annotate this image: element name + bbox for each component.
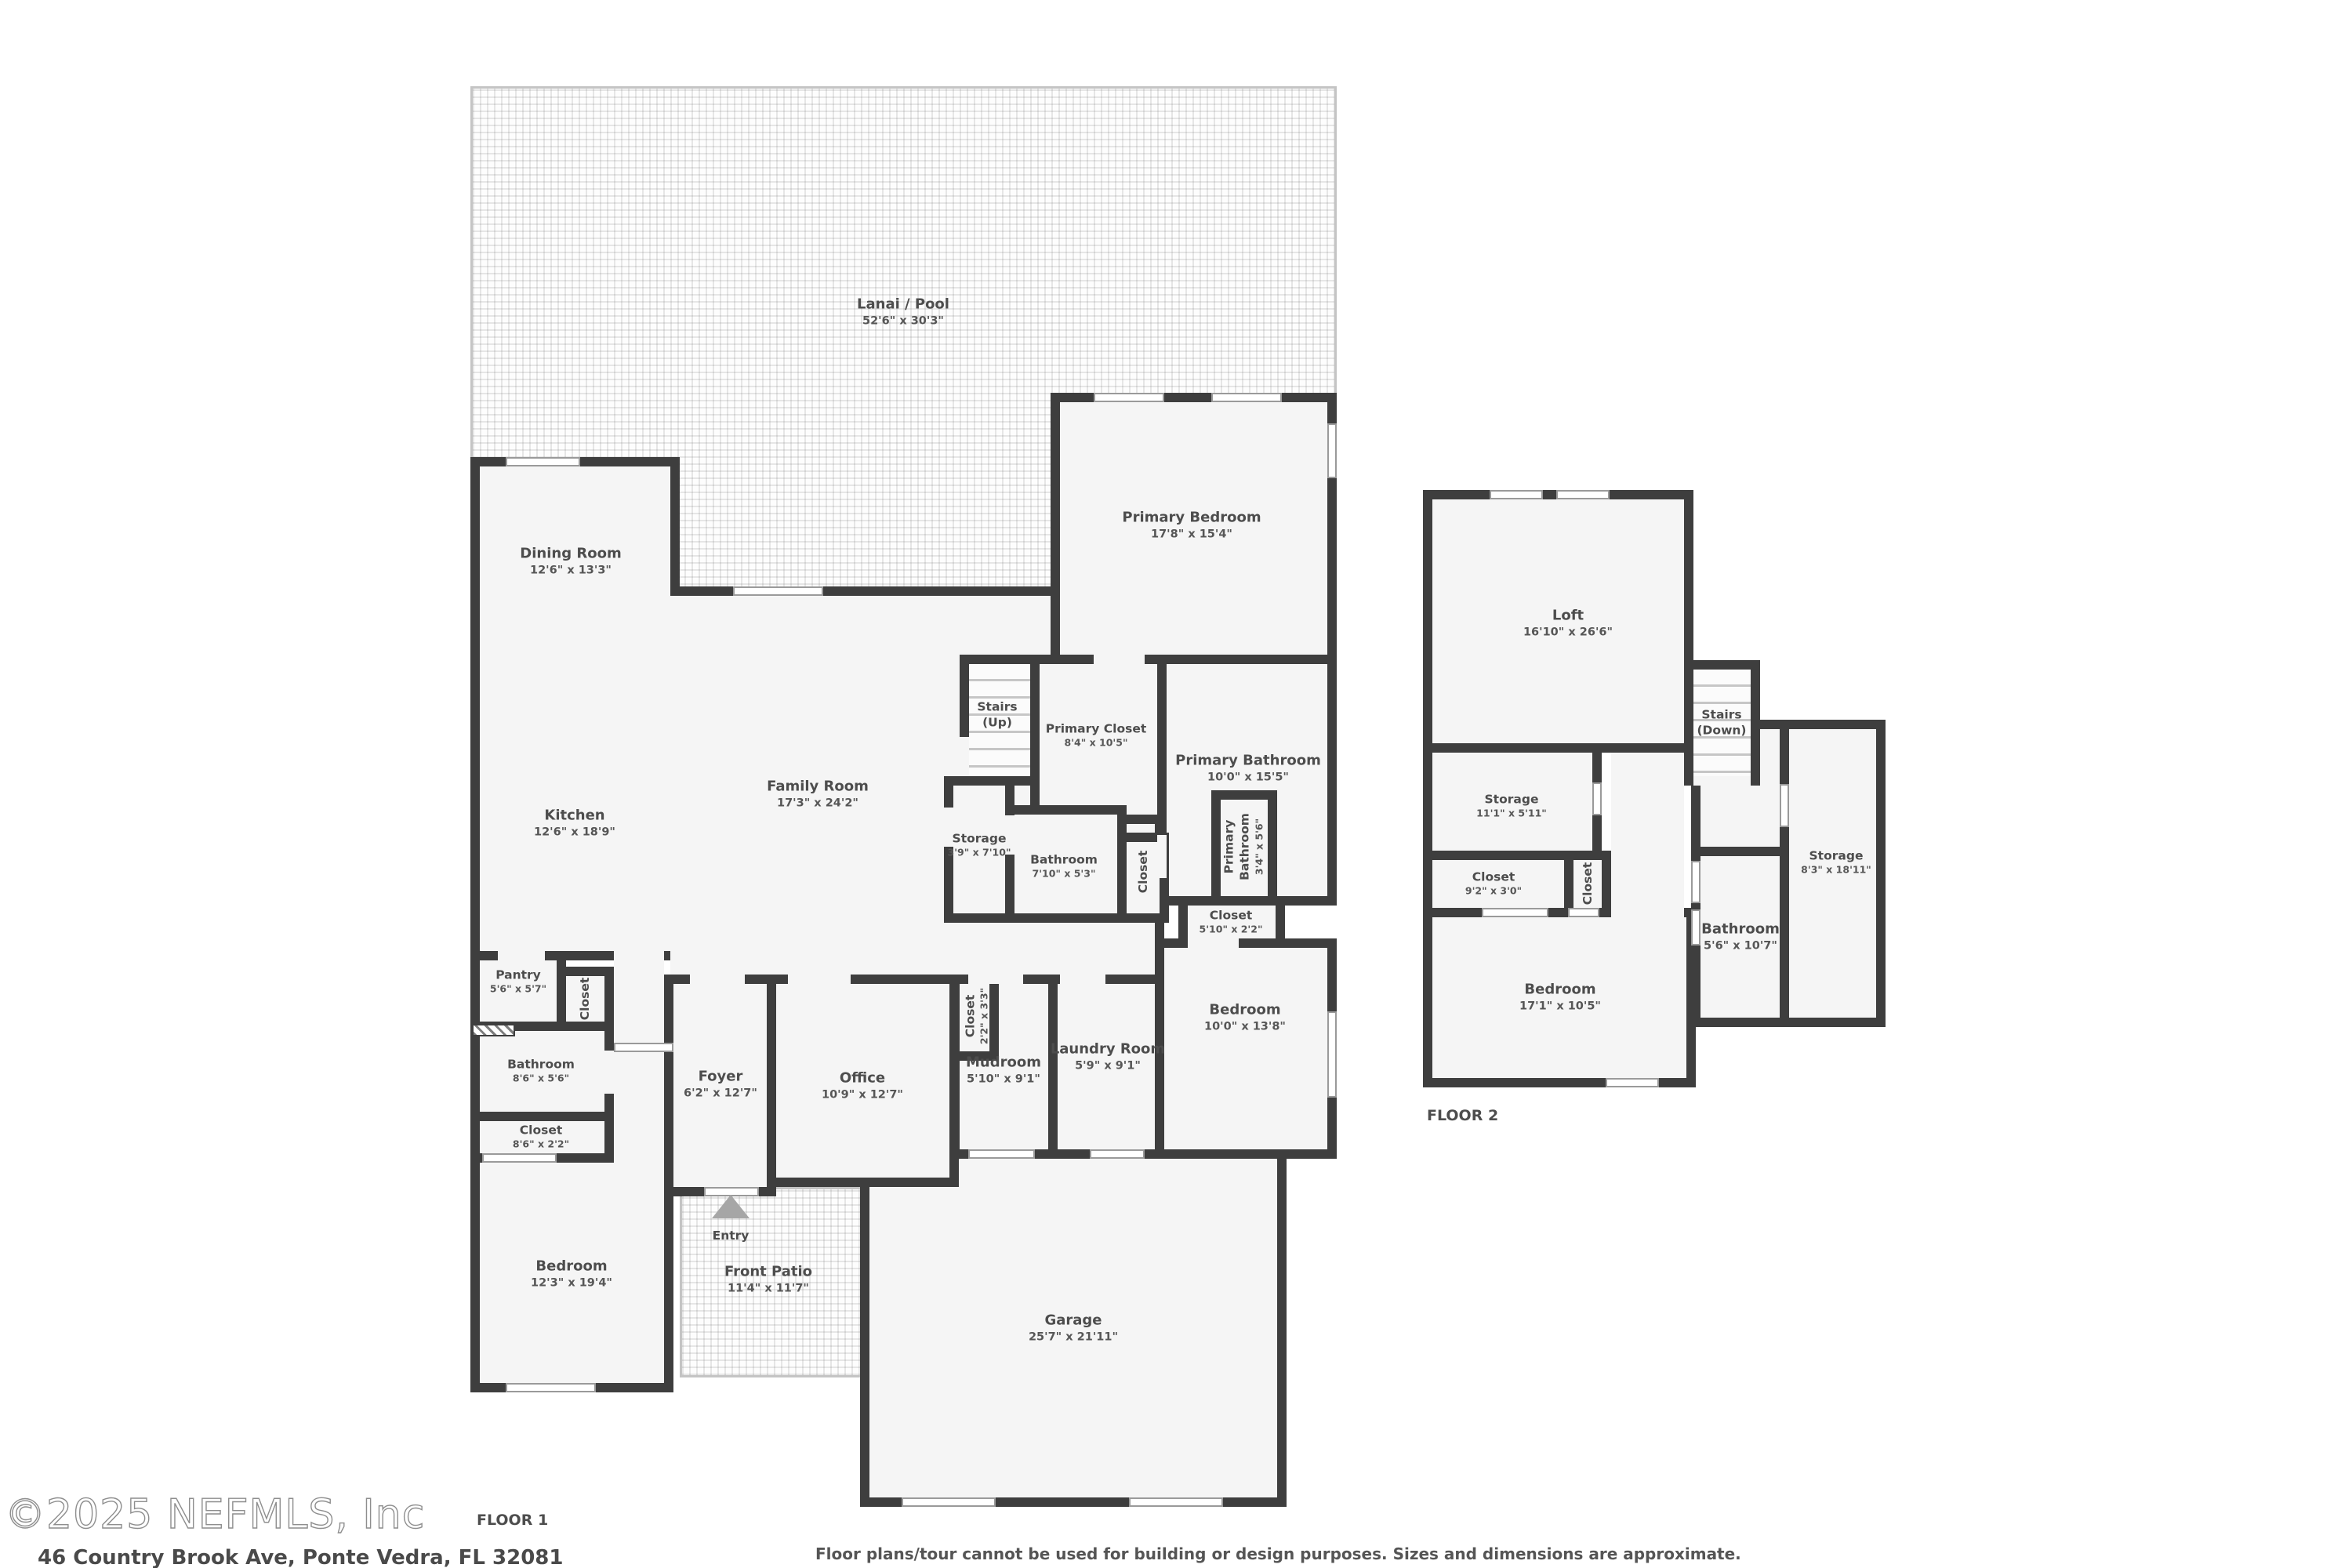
- room-dims: 8'3" x 18'11": [1801, 864, 1871, 877]
- room-name: Primary Bedroom: [1122, 509, 1261, 528]
- door-frame: [614, 1043, 673, 1052]
- room-name: Pantry: [490, 967, 546, 983]
- room-dims: 11'4" x 11'7": [724, 1281, 812, 1296]
- label-pantry-closet: Closet: [577, 978, 593, 1021]
- room-dims: 10'9" x 12'7": [822, 1087, 903, 1102]
- label-primary-bedroom: Primary Bedroom 17'8" x 15'4": [1122, 509, 1261, 543]
- window: [1211, 393, 1282, 402]
- door-opening: [1693, 776, 1751, 786]
- watermark: ©2025 NEFMLS, Inc: [5, 1491, 425, 1538]
- room-name: Storage: [1801, 848, 1871, 864]
- floor2-label: FLOOR 2: [1427, 1107, 1498, 1124]
- floor1-label: FLOOR 1: [477, 1512, 548, 1529]
- room-name: Dining Room: [520, 545, 621, 564]
- label-lanai: Lanai / Pool 52'6" x 30'3": [857, 296, 949, 329]
- room-dims: (Up): [977, 715, 1017, 731]
- room-name: Closet: [963, 988, 978, 1044]
- room-name: Storage: [948, 831, 1011, 847]
- room-name: Primary Closet: [1046, 721, 1147, 737]
- label-primary-closet: Primary Closet 8'4" x 10'5": [1046, 721, 1147, 750]
- entry-arrow-icon: [712, 1195, 750, 1218]
- label-bedroom2-closet: Closet 5'10" x 2'2": [1200, 908, 1263, 937]
- room-name: Foyer: [684, 1068, 757, 1087]
- room-name: Bedroom: [1204, 1001, 1286, 1020]
- floorplan-canvas: Lanai / Pool 52'6" x 30'3" Dining Room 1…: [0, 0, 2352, 1568]
- door-frame: [1090, 1149, 1145, 1159]
- label-mud-closet: Closet 2'2" x 3'3": [963, 988, 992, 1044]
- room-name: Closet: [1465, 869, 1522, 885]
- label-closet2-f2: Closet: [1580, 862, 1595, 906]
- room-dims: 5'6" x 10'7": [1701, 938, 1780, 953]
- room-name: Kitchen: [534, 807, 615, 826]
- door-opening: [498, 951, 545, 960]
- label-bathroom-f2: Bathroom 5'6" x 10'7": [1701, 920, 1780, 954]
- room-dims: 12'6" x 13'3": [520, 563, 621, 578]
- room-name: Bathroom: [507, 1057, 575, 1073]
- room-name: Stairs: [1697, 707, 1746, 723]
- room-dims: 10'0" x 15'5": [1175, 770, 1321, 785]
- window: [1327, 423, 1337, 478]
- room-dims: 17'8" x 15'4": [1122, 527, 1261, 542]
- door-opening: [960, 737, 969, 776]
- room-dims: 12'6" x 18'9": [534, 825, 615, 840]
- kitchen-family-opening: [670, 596, 680, 975]
- room-name: Loft: [1523, 607, 1613, 626]
- landing-f2: [1611, 753, 1684, 917]
- label-bedroom-f2: Bedroom 17'1" x 10'5": [1519, 981, 1601, 1014]
- door-frame: [1691, 909, 1700, 946]
- room-dims: 2'2" x 3'3": [978, 988, 992, 1044]
- door-opening: [788, 975, 851, 984]
- room-dims: 5'9" x 9'1": [1049, 1058, 1167, 1073]
- door-opening: [604, 1051, 614, 1094]
- label-pantry: Pantry 5'6" x 5'7": [490, 967, 546, 996]
- door-opening: [1094, 655, 1145, 664]
- label-kitchen: Kitchen 12'6" x 18'9": [534, 807, 615, 840]
- window: [1691, 861, 1700, 903]
- room-dims: 11'1" x 5'11": [1476, 808, 1547, 821]
- label-bathroom2: Bathroom 8'6" x 5'6": [507, 1057, 575, 1086]
- window: [1327, 1011, 1337, 1098]
- room-dims: 9'2" x 3'0": [1465, 885, 1522, 898]
- window: [482, 1153, 557, 1163]
- door-opening: [1157, 835, 1167, 878]
- label-hall-bathroom: Bathroom 7'10" x 5'3": [1030, 852, 1098, 881]
- room-name: Closet: [513, 1123, 569, 1138]
- room-dims: 5'10" x 2'2": [1200, 924, 1263, 937]
- room-name: Stairs: [977, 699, 1017, 715]
- room-name: Laundry Room: [1049, 1040, 1167, 1059]
- label-hall-closet: Closet: [1135, 851, 1151, 894]
- room-name: Mudroom: [966, 1054, 1041, 1073]
- disclaimer: Floor plans/tour cannot be used for buil…: [815, 1544, 1741, 1563]
- door-opening: [968, 975, 1023, 984]
- room-dims: 8'4" x 10'5": [1046, 737, 1147, 750]
- room-name: Entry: [713, 1228, 750, 1243]
- room-name: Family Room: [767, 778, 869, 797]
- label-loft: Loft 16'10" x 26'6": [1523, 607, 1613, 641]
- window: [733, 586, 823, 596]
- door-frame: [1482, 908, 1548, 917]
- room-dining-kitchen: [470, 457, 680, 960]
- window: [1592, 782, 1602, 815]
- label-bedroom2: Bedroom 10'0" x 13'8": [1204, 1001, 1286, 1035]
- room-bedroom2: [1155, 938, 1337, 1159]
- label-stairs-down: Stairs (Down): [1697, 707, 1746, 739]
- room-dims: 16'10" x 26'6": [1523, 625, 1613, 640]
- label-family: Family Room 17'3" x 24'2": [767, 778, 869, 811]
- window: [902, 1497, 996, 1507]
- hatch-shelf: [472, 1024, 515, 1036]
- room-dims: 8'6" x 5'6": [507, 1073, 575, 1086]
- room-dims: 10'0" x 13'8": [1204, 1019, 1286, 1034]
- room-dims: 8'6" x 2'2": [513, 1138, 569, 1152]
- label-bedroom3: Bedroom 12'3" x 19'4": [531, 1258, 612, 1291]
- room-dims: 3'9" x 7'10": [948, 847, 1011, 860]
- label-office: Office 10'9" x 12'7": [822, 1069, 903, 1103]
- label-garage: Garage 25'7" x 21'11": [1029, 1312, 1118, 1345]
- room-name: Bedroom: [1519, 981, 1601, 1000]
- room-name: Bedroom: [531, 1258, 612, 1276]
- room-dims: 17'1" x 10'5": [1519, 999, 1601, 1014]
- label-entry: Entry: [713, 1228, 750, 1243]
- label-mudroom: Mudroom 5'10" x 9'1": [966, 1054, 1041, 1087]
- room-name: Garage: [1029, 1312, 1118, 1330]
- label-storage1-f2: Storage 11'1" x 5'11": [1476, 792, 1547, 821]
- window: [1490, 490, 1543, 499]
- room-name: Closet: [1135, 851, 1151, 894]
- room-dims: 17'3" x 24'2": [767, 796, 869, 811]
- label-front-patio: Front Patio 11'4" x 11'7": [724, 1263, 812, 1297]
- room-dims: 7'10" x 5'3": [1030, 868, 1098, 881]
- window: [1556, 490, 1610, 499]
- door-opening: [690, 975, 745, 984]
- room-name: Primary Bathroom: [1175, 752, 1321, 771]
- window: [1606, 1078, 1659, 1087]
- label-bedroom3-closet: Closet 8'6" x 2'2": [513, 1123, 569, 1152]
- room-dims: 12'3" x 19'4": [531, 1276, 612, 1290]
- window: [1129, 1497, 1223, 1507]
- address: 46 Country Brook Ave, Ponte Vedra, FL 32…: [38, 1546, 563, 1568]
- room-name: Bathroom: [1030, 852, 1098, 868]
- room-dims: 5'6" x 5'7": [490, 983, 546, 996]
- door-frame: [1780, 784, 1789, 827]
- room-name: Front Patio: [724, 1263, 812, 1282]
- room-name: Bathroom: [1701, 920, 1780, 939]
- window: [506, 457, 580, 466]
- label-closet1-f2: Closet 9'2" x 3'0": [1465, 869, 1522, 898]
- room-dims: 52'6" x 30'3": [857, 314, 949, 328]
- label-storage: Storage 3'9" x 7'10": [948, 831, 1011, 860]
- label-dining: Dining Room 12'6" x 13'3": [520, 545, 621, 579]
- label-laundry: Laundry Room 5'9" x 9'1": [1049, 1040, 1167, 1074]
- room-name: Office: [822, 1069, 903, 1088]
- room-name: Closet: [577, 978, 593, 1021]
- label-stairs-up: Stairs (Up): [977, 699, 1017, 731]
- label-foyer: Foyer 6'2" x 12'7": [684, 1068, 757, 1102]
- door-opening: [1060, 975, 1105, 984]
- window: [1094, 393, 1164, 402]
- window: [506, 1383, 596, 1392]
- label-primary-bathroom: Primary Bathroom 10'0" x 15'5": [1175, 752, 1321, 786]
- door-opening: [623, 1153, 664, 1163]
- room-dims: 3'4" x 5'6": [1253, 796, 1266, 898]
- room-name: Closet: [1200, 908, 1263, 924]
- room-name: Primary Bathroom: [1221, 796, 1253, 898]
- room-dims: 25'7" x 21'11": [1029, 1330, 1118, 1345]
- door-opening: [1188, 938, 1239, 948]
- room-dims: 5'10" x 9'1": [966, 1072, 1041, 1087]
- label-primary-wc: Primary Bathroom 3'4" x 5'6": [1221, 796, 1265, 898]
- room-name: Lanai / Pool: [857, 296, 949, 314]
- door-frame: [968, 1149, 1035, 1159]
- label-storage2-f2: Storage 8'3" x 18'11": [1801, 848, 1871, 877]
- room-dims: (Down): [1697, 723, 1746, 739]
- hallway-corridor: [614, 951, 664, 1163]
- room-name: Storage: [1476, 792, 1547, 808]
- door-frame: [1568, 908, 1599, 917]
- room-dims: 6'2" x 12'7": [684, 1086, 757, 1101]
- room-name: Closet: [1580, 862, 1595, 906]
